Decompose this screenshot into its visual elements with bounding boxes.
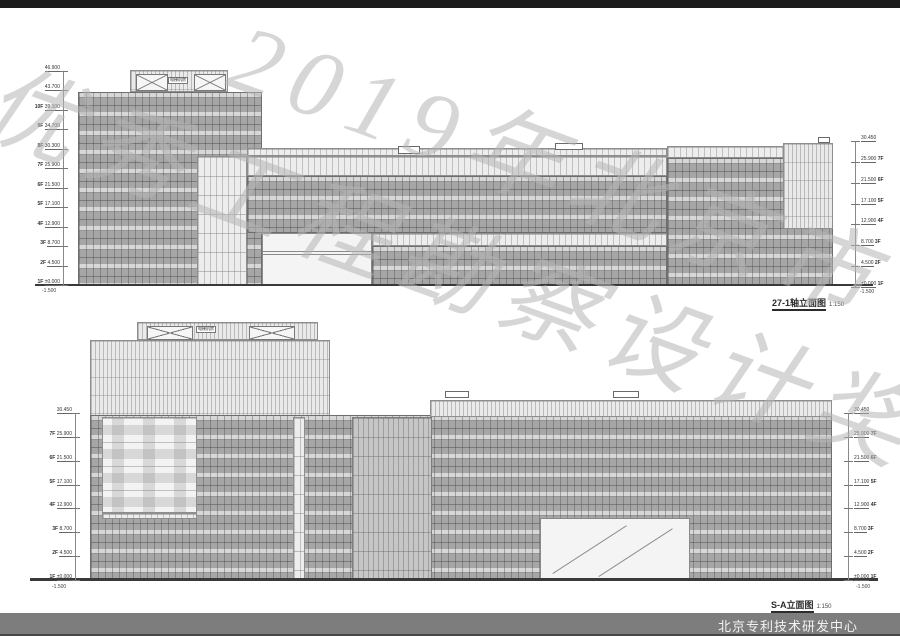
elev1-title-text: 27-1轴立面图 xyxy=(772,298,826,311)
elev2-level-ladder-right: 30.450 25.900 7F21.500 6F17.100 5F12.900… xyxy=(848,413,894,580)
elev1-title: 27-1轴立面图1:150 xyxy=(772,293,844,311)
elev2-entrance-glazing xyxy=(540,518,690,580)
elev2-roof-xbrace-left xyxy=(147,326,193,340)
elev2-roof-annotation-1 xyxy=(445,391,469,398)
elev2-recessed-bay xyxy=(352,417,432,580)
elev1-roof-penthouse-frame: 电梯机房 xyxy=(130,70,228,92)
elev1-slab-facade-lower xyxy=(372,246,667,285)
elev2-main-facade xyxy=(90,415,832,580)
elev1-below-grade-right: -1.500 xyxy=(860,289,874,295)
elev1-level-ladder-left: 46.900 43.70010F 39.1009F 34.7008F 30.30… xyxy=(18,71,64,285)
elev2-inset-base-band xyxy=(102,513,197,519)
elev1-ground-line xyxy=(35,284,873,286)
elev2-roof-xbrace-right xyxy=(249,326,295,340)
elev1-slab-facade-upper xyxy=(247,176,667,233)
elev2-ground-line xyxy=(30,578,878,581)
elev1-roof-label: 电梯机房 xyxy=(168,77,188,84)
elev1-entrance-canopy-line2 xyxy=(263,254,371,255)
elev2-roof-penthouse-frame: 电梯机房 xyxy=(137,322,318,340)
elev1-below-grade-left: -1.500 xyxy=(42,288,56,294)
elev1-joint-light-strip xyxy=(197,156,247,285)
elev2-level-ladder-left: 30.4507F 25.9006F 21.5005F 17.1004F 12.9… xyxy=(30,413,76,580)
elev1-roof-annotation-2 xyxy=(555,143,583,150)
elev1-right-light-tower xyxy=(783,143,833,229)
elev2-canopy-strut-1 xyxy=(552,525,626,574)
elev2-title-text: S-A立面图 xyxy=(771,600,814,613)
elev1-entrance-canopy-line xyxy=(263,251,371,252)
elev1-roof-xbrace-right xyxy=(194,74,226,91)
elev2-tower-glass-facade xyxy=(90,340,330,417)
elev1-slab-parapet-band xyxy=(247,148,667,156)
elev1-level-ladder-right: 30.450 25.900 7F21.500 6F17.100 5F12.900… xyxy=(855,141,898,287)
project-title: 北京专利技术研发中心 xyxy=(718,616,858,635)
elev2-stair-shaft-strip xyxy=(293,417,305,580)
drawing-sheet: 电梯机房 46.900 43.70010F 39.1009F 34.7008F … xyxy=(0,0,900,636)
elev2-roof-annotation-2 xyxy=(613,391,639,398)
elev2-right-parapet-band xyxy=(430,400,832,417)
elev1-slab-mid-band xyxy=(372,233,667,246)
elev1-scale: 1:150 xyxy=(829,302,844,308)
elev2-below-grade-left: -1.500 xyxy=(52,584,66,590)
elev2-title: S-A立面图1:150 xyxy=(771,595,832,613)
elev2-roof-label: 电梯机房 xyxy=(196,326,216,333)
elev1-roof-xbrace-left xyxy=(136,74,168,91)
elev1-slab-top-floor-band xyxy=(247,156,667,176)
elev2-below-grade-right: -1.500 xyxy=(856,584,870,590)
titleblock-bar: 北京专利技术研发中心 xyxy=(0,613,900,636)
elev1-roof-annotation-3 xyxy=(818,137,830,143)
elev2-white-inset-panel xyxy=(102,417,197,513)
elev1-roof-annotation-1 xyxy=(398,146,420,154)
elev1-entrance-glazing xyxy=(262,233,372,285)
sheet-top-edge xyxy=(0,0,900,8)
elev2-scale: 1:150 xyxy=(817,604,832,610)
